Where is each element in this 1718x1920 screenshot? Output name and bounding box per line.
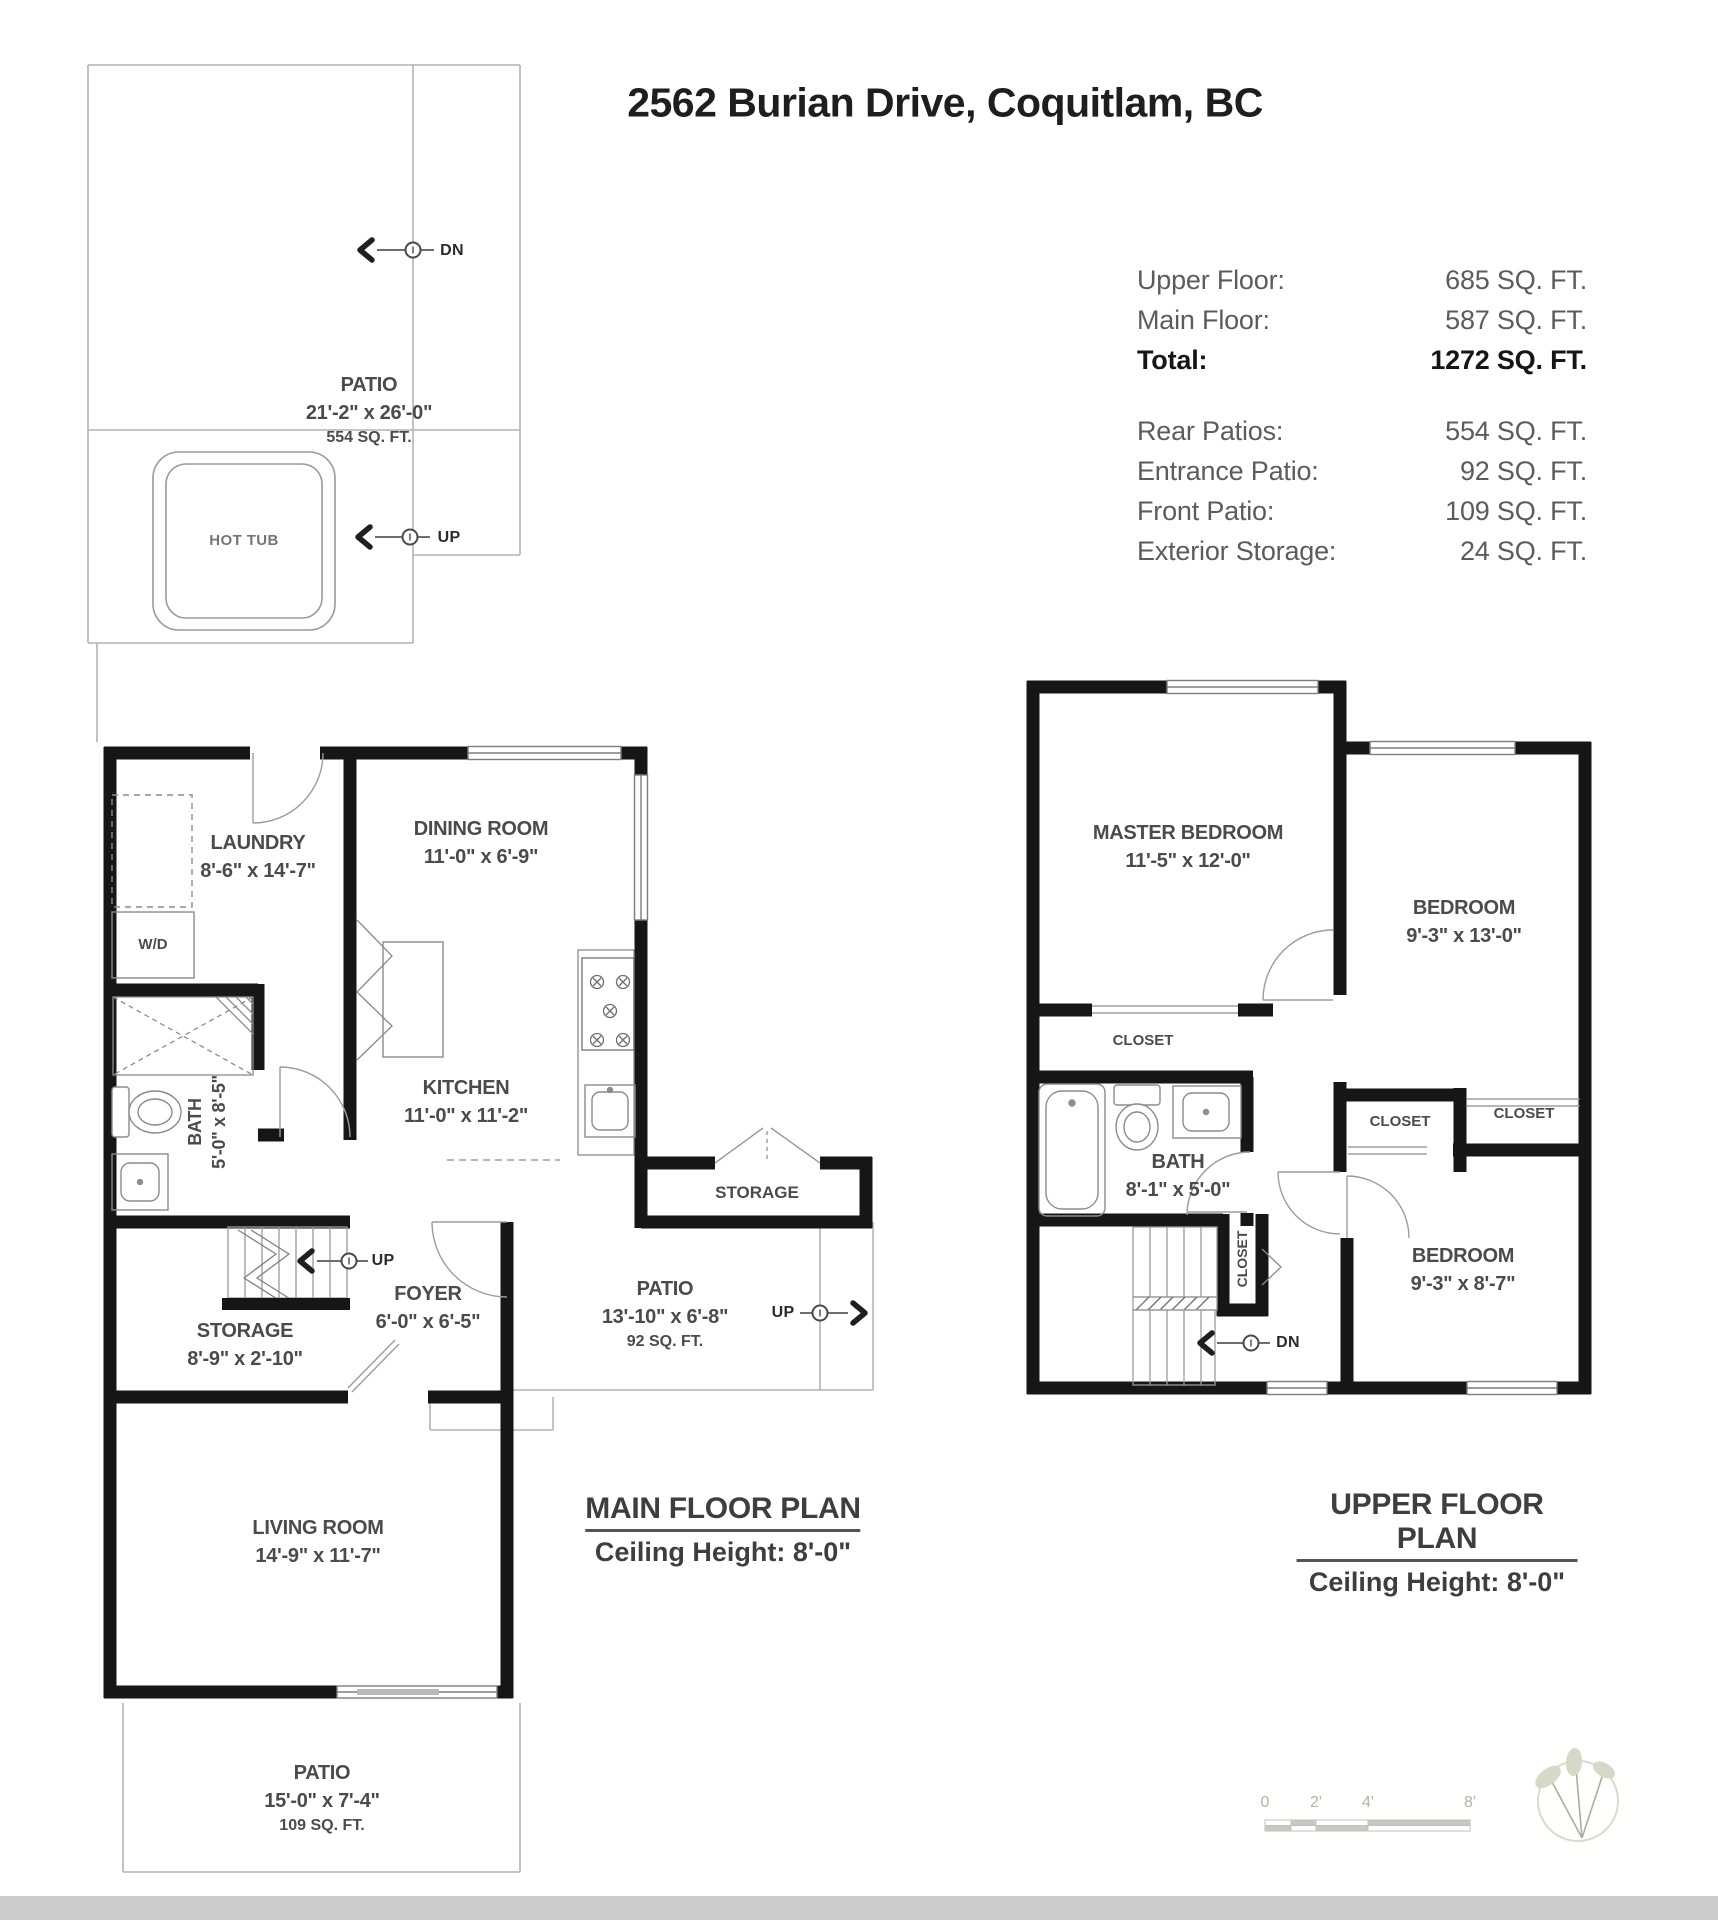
plan-ceiling-text: Ceiling Height: 8'-0" — [1297, 1567, 1578, 1598]
room-label-laundry: LAUNDRY 8'-6" x 14'-7" — [200, 829, 315, 885]
toilet-icon-main — [112, 1087, 181, 1137]
plan-title-text: MAIN FLOOR PLAN — [585, 1492, 860, 1532]
row-label: Exterior Storage: — [1137, 531, 1336, 571]
closet-label-stairs: CLOSET — [1228, 1231, 1256, 1288]
up-label-main-stairs: UP — [372, 1252, 395, 1270]
kitchen-sink-icon — [585, 1085, 635, 1137]
shower-icon — [113, 997, 253, 1075]
table-row-rear-patios: Rear Patios: 554 SQ. FT. — [1137, 411, 1587, 451]
scale-tick-8ft: 8' — [1464, 1794, 1476, 1812]
room-label-rear-patio: PATIO 21'-2" x 26'-0" 554 SQ. FT. — [306, 371, 432, 449]
main-floor-plan-title: MAIN FLOOR PLAN Ceiling Height: 8'-0" — [585, 1492, 860, 1568]
room-label-bath-upper: BATH 8'-1" x 5'-0" — [1126, 1148, 1231, 1204]
table-row-upper-floor: Upper Floor: 685 SQ. FT. — [1137, 260, 1587, 300]
row-value: 1272 SQ. FT. — [1430, 340, 1587, 380]
row-value: 554 SQ. FT. — [1445, 411, 1587, 451]
up-label-rear-patio: UP — [438, 529, 461, 547]
room-label-foyer: FOYER 6'-0" x 6'-5" — [376, 1280, 481, 1336]
dn-label-upper-stairs: DN — [1276, 1334, 1300, 1352]
pantry-bifold-icon — [357, 920, 392, 1060]
rear-patio-outline — [88, 65, 520, 742]
closet-label-b: CLOSET — [1494, 1100, 1555, 1128]
row-label: Front Patio: — [1137, 491, 1274, 531]
table-row-entrance-patio: Entrance Patio: 92 SQ. FT. — [1137, 451, 1587, 491]
room-label-front-patio: PATIO 15'-0" x 7'-4" 109 SQ. FT. — [264, 1759, 379, 1837]
footer-strip — [0, 1896, 1718, 1920]
sink-icon-upper — [1173, 1086, 1241, 1138]
bathtub-icon — [1039, 1084, 1105, 1216]
closet-label-master: CLOSET — [1113, 1027, 1174, 1055]
row-value: 109 SQ. FT. — [1445, 491, 1587, 531]
row-label: Entrance Patio: — [1137, 451, 1319, 491]
room-label-bath-main: BATH 5'-0" x 8'-5" — [183, 1075, 231, 1169]
upper-floor-plan-title: UPPER FLOOR PLAN Ceiling Height: 8'-0" — [1297, 1488, 1578, 1598]
room-label-kitchen: KITCHEN 11'-0" x 11'-2" — [404, 1074, 528, 1130]
plan-ceiling-text: Ceiling Height: 8'-0" — [585, 1537, 860, 1568]
dn-label-rear-patio: DN — [440, 242, 464, 260]
sink-icon-main — [112, 1154, 168, 1210]
dn-arrow-rear-patio — [360, 240, 434, 260]
row-value: 92 SQ. FT. — [1460, 451, 1587, 491]
wd-label: W/D — [138, 931, 167, 959]
table-secondary-section: Rear Patios: 554 SQ. FT. Entrance Patio:… — [1137, 411, 1587, 571]
row-label: Rear Patios: — [1137, 411, 1283, 451]
dn-arrow-upper-stairs — [1200, 1333, 1270, 1353]
stove-icon — [582, 958, 634, 1050]
room-label-bedroom2: BEDROOM 9'-3" x 8'-7" — [1411, 1242, 1516, 1298]
upper-stairs — [1133, 1227, 1217, 1385]
row-value: 24 SQ. FT. — [1460, 531, 1587, 571]
table-row-exterior-storage: Exterior Storage: 24 SQ. FT. — [1137, 531, 1587, 571]
closet-label-a: CLOSET — [1370, 1108, 1431, 1136]
exterior-storage-doors-icon — [715, 1128, 820, 1163]
scale-bar — [1265, 1820, 1470, 1831]
scale-tick-0: 0 — [1261, 1794, 1270, 1812]
scale-tick-4ft: 4' — [1362, 1794, 1374, 1812]
brand-logo — [1531, 1747, 1618, 1841]
room-label-living: LIVING ROOM 14'-9" x 11'-7" — [252, 1514, 383, 1570]
up-arrow-entrance-patio — [800, 1303, 865, 1323]
main-stairs — [222, 1227, 350, 1310]
area-summary-table: Upper Floor: 685 SQ. FT. Main Floor: 587… — [1137, 260, 1587, 571]
up-arrow-main-stairs — [300, 1251, 368, 1271]
row-label: Total: — [1137, 340, 1207, 380]
table-row-front-patio: Front Patio: 109 SQ. FT. — [1137, 491, 1587, 531]
toilet-icon-upper — [1114, 1085, 1160, 1150]
scale-tick-2ft: 2' — [1310, 1794, 1322, 1812]
kitchen-island-icon — [383, 942, 443, 1057]
room-label-master: MASTER BEDROOM 11'-5" x 12'-0" — [1093, 819, 1283, 875]
room-label-entrance-patio: PATIO 13'-10" x 6'-8" 92 SQ. FT. — [602, 1275, 728, 1353]
up-arrow-rear-patio — [358, 527, 430, 547]
ext-storage-label: STORAGE — [715, 1179, 799, 1207]
floorplan-sheet: 2562 Burian Drive, Coquitlam, BC Upper F… — [0, 0, 1718, 1920]
row-value: 685 SQ. FT. — [1445, 260, 1587, 300]
hot-tub-label: HOT TUB — [209, 527, 278, 555]
room-label-storage: STORAGE 8'-9" x 2'-10" — [187, 1317, 302, 1373]
row-label: Upper Floor: — [1137, 260, 1285, 300]
room-label-dining: DINING ROOM 11'-0" x 6'-9" — [414, 815, 548, 871]
table-row-total: Total: 1272 SQ. FT. — [1137, 340, 1587, 380]
page-title: 2562 Burian Drive, Coquitlam, BC — [627, 80, 1263, 127]
room-label-bedroom1: BEDROOM 9'-3" x 13'-0" — [1406, 894, 1521, 950]
up-label-entrance-patio: UP — [772, 1304, 795, 1322]
plan-title-text: UPPER FLOOR PLAN — [1297, 1488, 1578, 1562]
table-row-main-floor: Main Floor: 587 SQ. FT. — [1137, 300, 1587, 340]
row-value: 587 SQ. FT. — [1445, 300, 1587, 340]
row-label: Main Floor: — [1137, 300, 1270, 340]
